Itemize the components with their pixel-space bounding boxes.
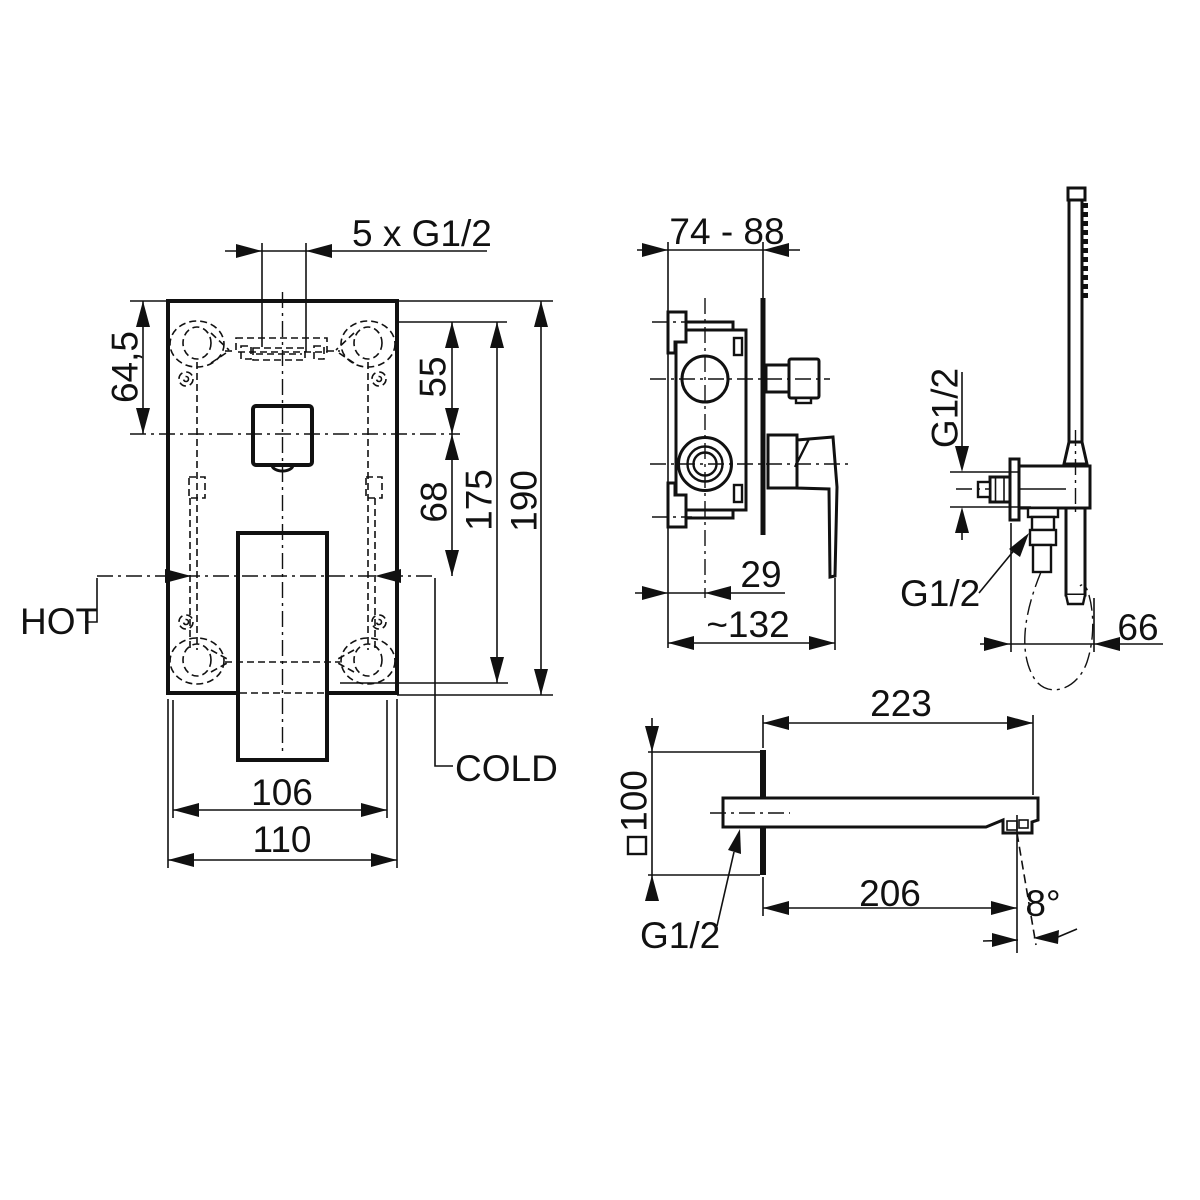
dim-label-100: 100	[614, 770, 655, 832]
wand-grip	[1066, 508, 1085, 595]
dim-label-ports: 5 x G1/2	[352, 213, 492, 254]
dim-label-132: ~132	[706, 604, 789, 645]
dim-label-175: 175	[459, 469, 500, 531]
hose-collar	[1032, 517, 1054, 530]
dim-label-106: 106	[251, 772, 313, 813]
dim-label-190: 190	[504, 470, 545, 532]
drawing-page: 5 x G1/2 64,5 55 68 175 190 HOT COLD 106…	[0, 0, 1200, 1200]
dim-label-g12-holder: G1/2	[925, 368, 966, 448]
dim-label-206: 206	[859, 873, 921, 914]
dim-label-29: 29	[740, 554, 781, 595]
hose-tube	[1033, 545, 1051, 572]
aerator-detail-2	[1019, 820, 1028, 828]
dim-label-g12-hose: G1/2	[900, 573, 980, 614]
dim-label-64-5: 64,5	[105, 331, 146, 403]
label-cold: COLD	[455, 748, 558, 789]
valve-rail-top	[686, 322, 733, 330]
clip-top	[734, 338, 742, 355]
knob-skirt	[796, 398, 811, 403]
technical-drawing: 5 x G1/2 64,5 55 68 175 190 HOT COLD 106…	[0, 0, 1200, 1200]
label-hot: HOT	[20, 601, 98, 642]
dim-label-110: 110	[253, 819, 312, 860]
aerator-detail-1	[1007, 821, 1017, 830]
lever-hub-side	[768, 435, 797, 488]
hose-flange	[1028, 508, 1058, 517]
wall-line	[761, 298, 766, 535]
holder-nut	[990, 477, 1010, 502]
dim-label-g12-spout: G1/2	[640, 915, 720, 956]
clip-bottom	[734, 485, 742, 502]
dim-label-8deg: 8°	[1025, 883, 1060, 924]
hose-nut	[1030, 530, 1056, 545]
wand-grip-tip	[1066, 595, 1085, 604]
dim-label-223: 223	[870, 683, 932, 724]
dim-label-68: 68	[414, 481, 455, 522]
wand-top-cap	[1068, 188, 1085, 200]
shower-wand	[1069, 200, 1082, 442]
shower-holder	[1019, 466, 1090, 508]
dim-label-74-88: 74 - 88	[669, 211, 784, 252]
valve-rail-bottom	[686, 510, 733, 518]
dim-label-66: 66	[1117, 607, 1158, 648]
dim-label-55: 55	[413, 356, 454, 397]
